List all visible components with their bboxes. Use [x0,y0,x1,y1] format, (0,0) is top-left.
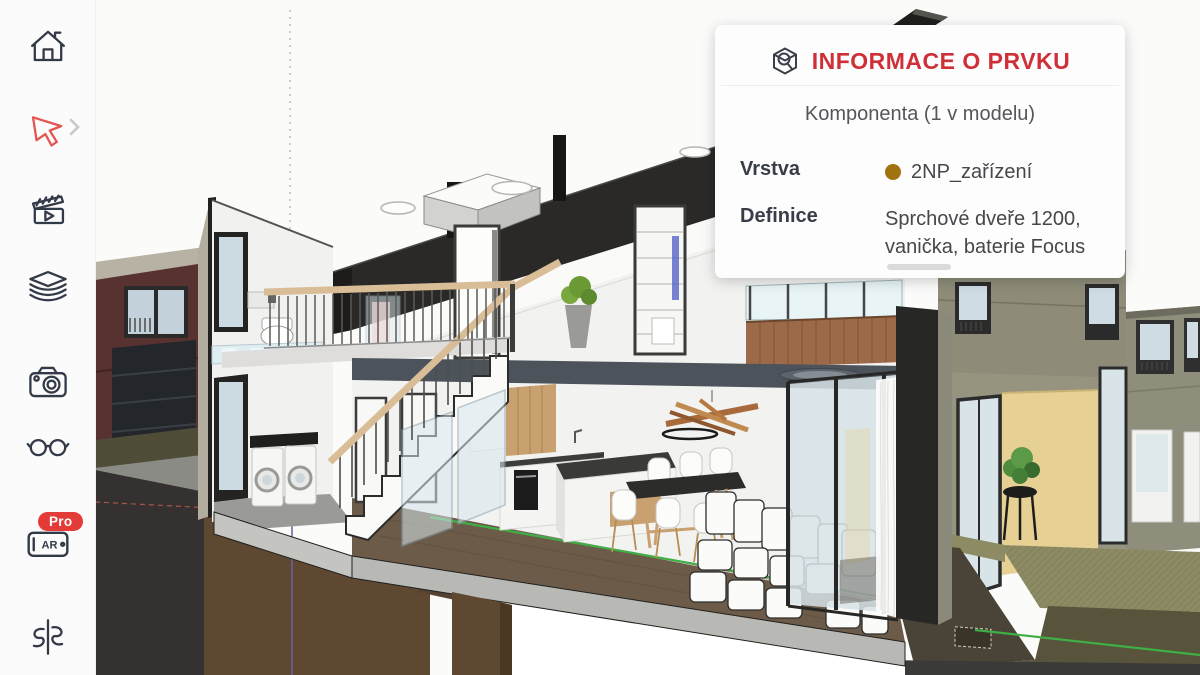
layer-row: Vrstva 2NP_zařízení [740,158,1100,186]
panel-scroll-thumb[interactable] [887,264,951,270]
panel-divider [721,85,1119,86]
element-info-panel: INFORMACE O PRVKU Komponenta (1 v modelu… [715,25,1125,278]
layers-icon[interactable] [24,263,72,311]
scenes-icon[interactable] [24,184,72,232]
definition-label: Definice [740,205,885,261]
terrace [746,280,902,368]
look-around-icon[interactable] [24,421,72,469]
select-tool-icon[interactable] [24,103,72,151]
app-window: AR Pro INFORMACE O PRVKU Komponenta (1 v… [0,0,1200,675]
definition-row: Definice Sprchové dveře 1200, vanička, b… [740,205,1100,261]
tool-expand-chevron-icon[interactable] [68,116,84,140]
element-info-icon [770,46,800,76]
right-cut-column [896,306,952,625]
camera-icon[interactable] [24,358,72,406]
section-plane-icon[interactable] [24,613,72,661]
home-icon[interactable] [24,21,72,69]
panel-header: INFORMACE O PRVKU [715,41,1125,81]
svg-text:AR: AR [42,539,58,551]
layer-value: 2NP_zařízení [911,158,1032,186]
layer-label: Vrstva [740,158,885,186]
panel-title: INFORMACE O PRVKU [812,48,1071,75]
layer-color-dot [885,164,901,180]
toolbar-sidebar: AR Pro [0,0,96,675]
definition-value: Sprchové dveře 1200, vanička, baterie Fo… [885,205,1100,261]
sliding-glass-doors [788,372,898,620]
component-summary: Komponenta (1 v modelu) [715,103,1125,126]
far-building [1126,306,1200,554]
pro-badge: Pro [38,512,83,531]
